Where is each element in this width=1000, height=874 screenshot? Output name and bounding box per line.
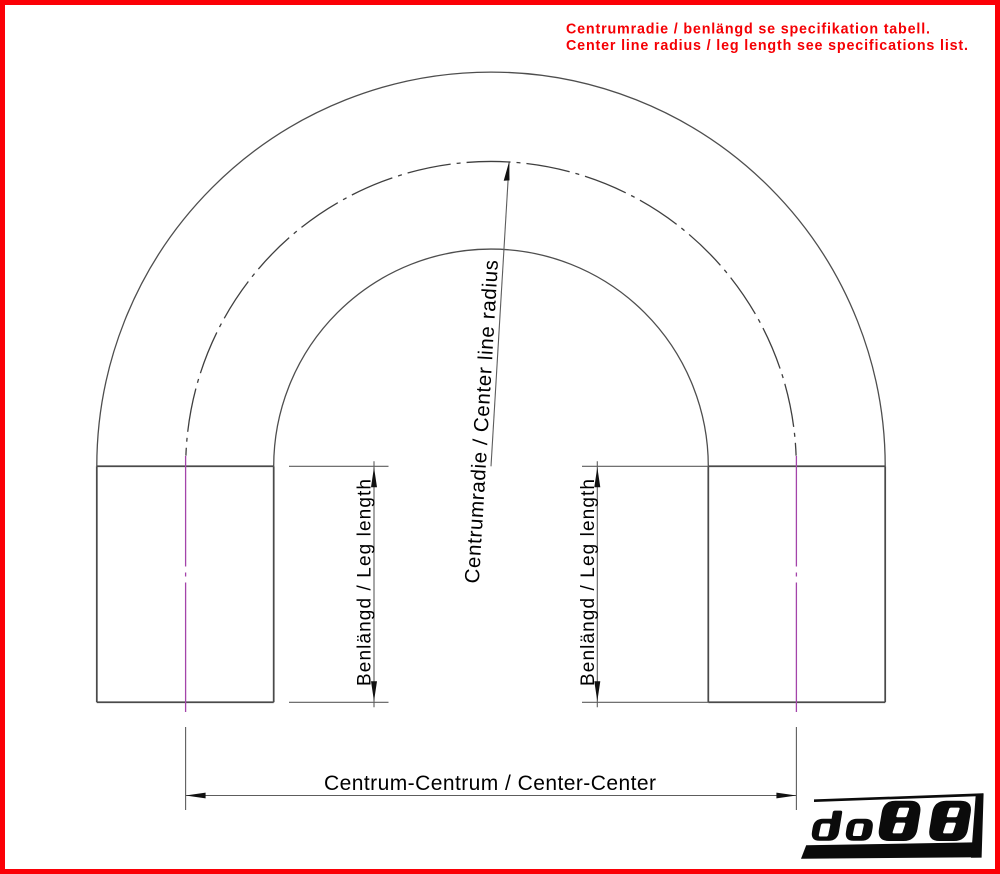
svg-text:Centrum-Centrum / Center-Cente: Centrum-Centrum / Center-Center: [324, 772, 656, 795]
svg-text:Center line radius / leg lengt: Center line radius / leg length see spec…: [566, 38, 968, 54]
svg-text:Benlängd / Leg length: Benlängd / Leg length: [578, 479, 599, 686]
svg-text:Benlängd / Leg length: Benlängd / Leg length: [355, 479, 376, 686]
svg-text:Centrumradie / benlängd se spe: Centrumradie / benlängd se specifikation…: [566, 21, 930, 37]
